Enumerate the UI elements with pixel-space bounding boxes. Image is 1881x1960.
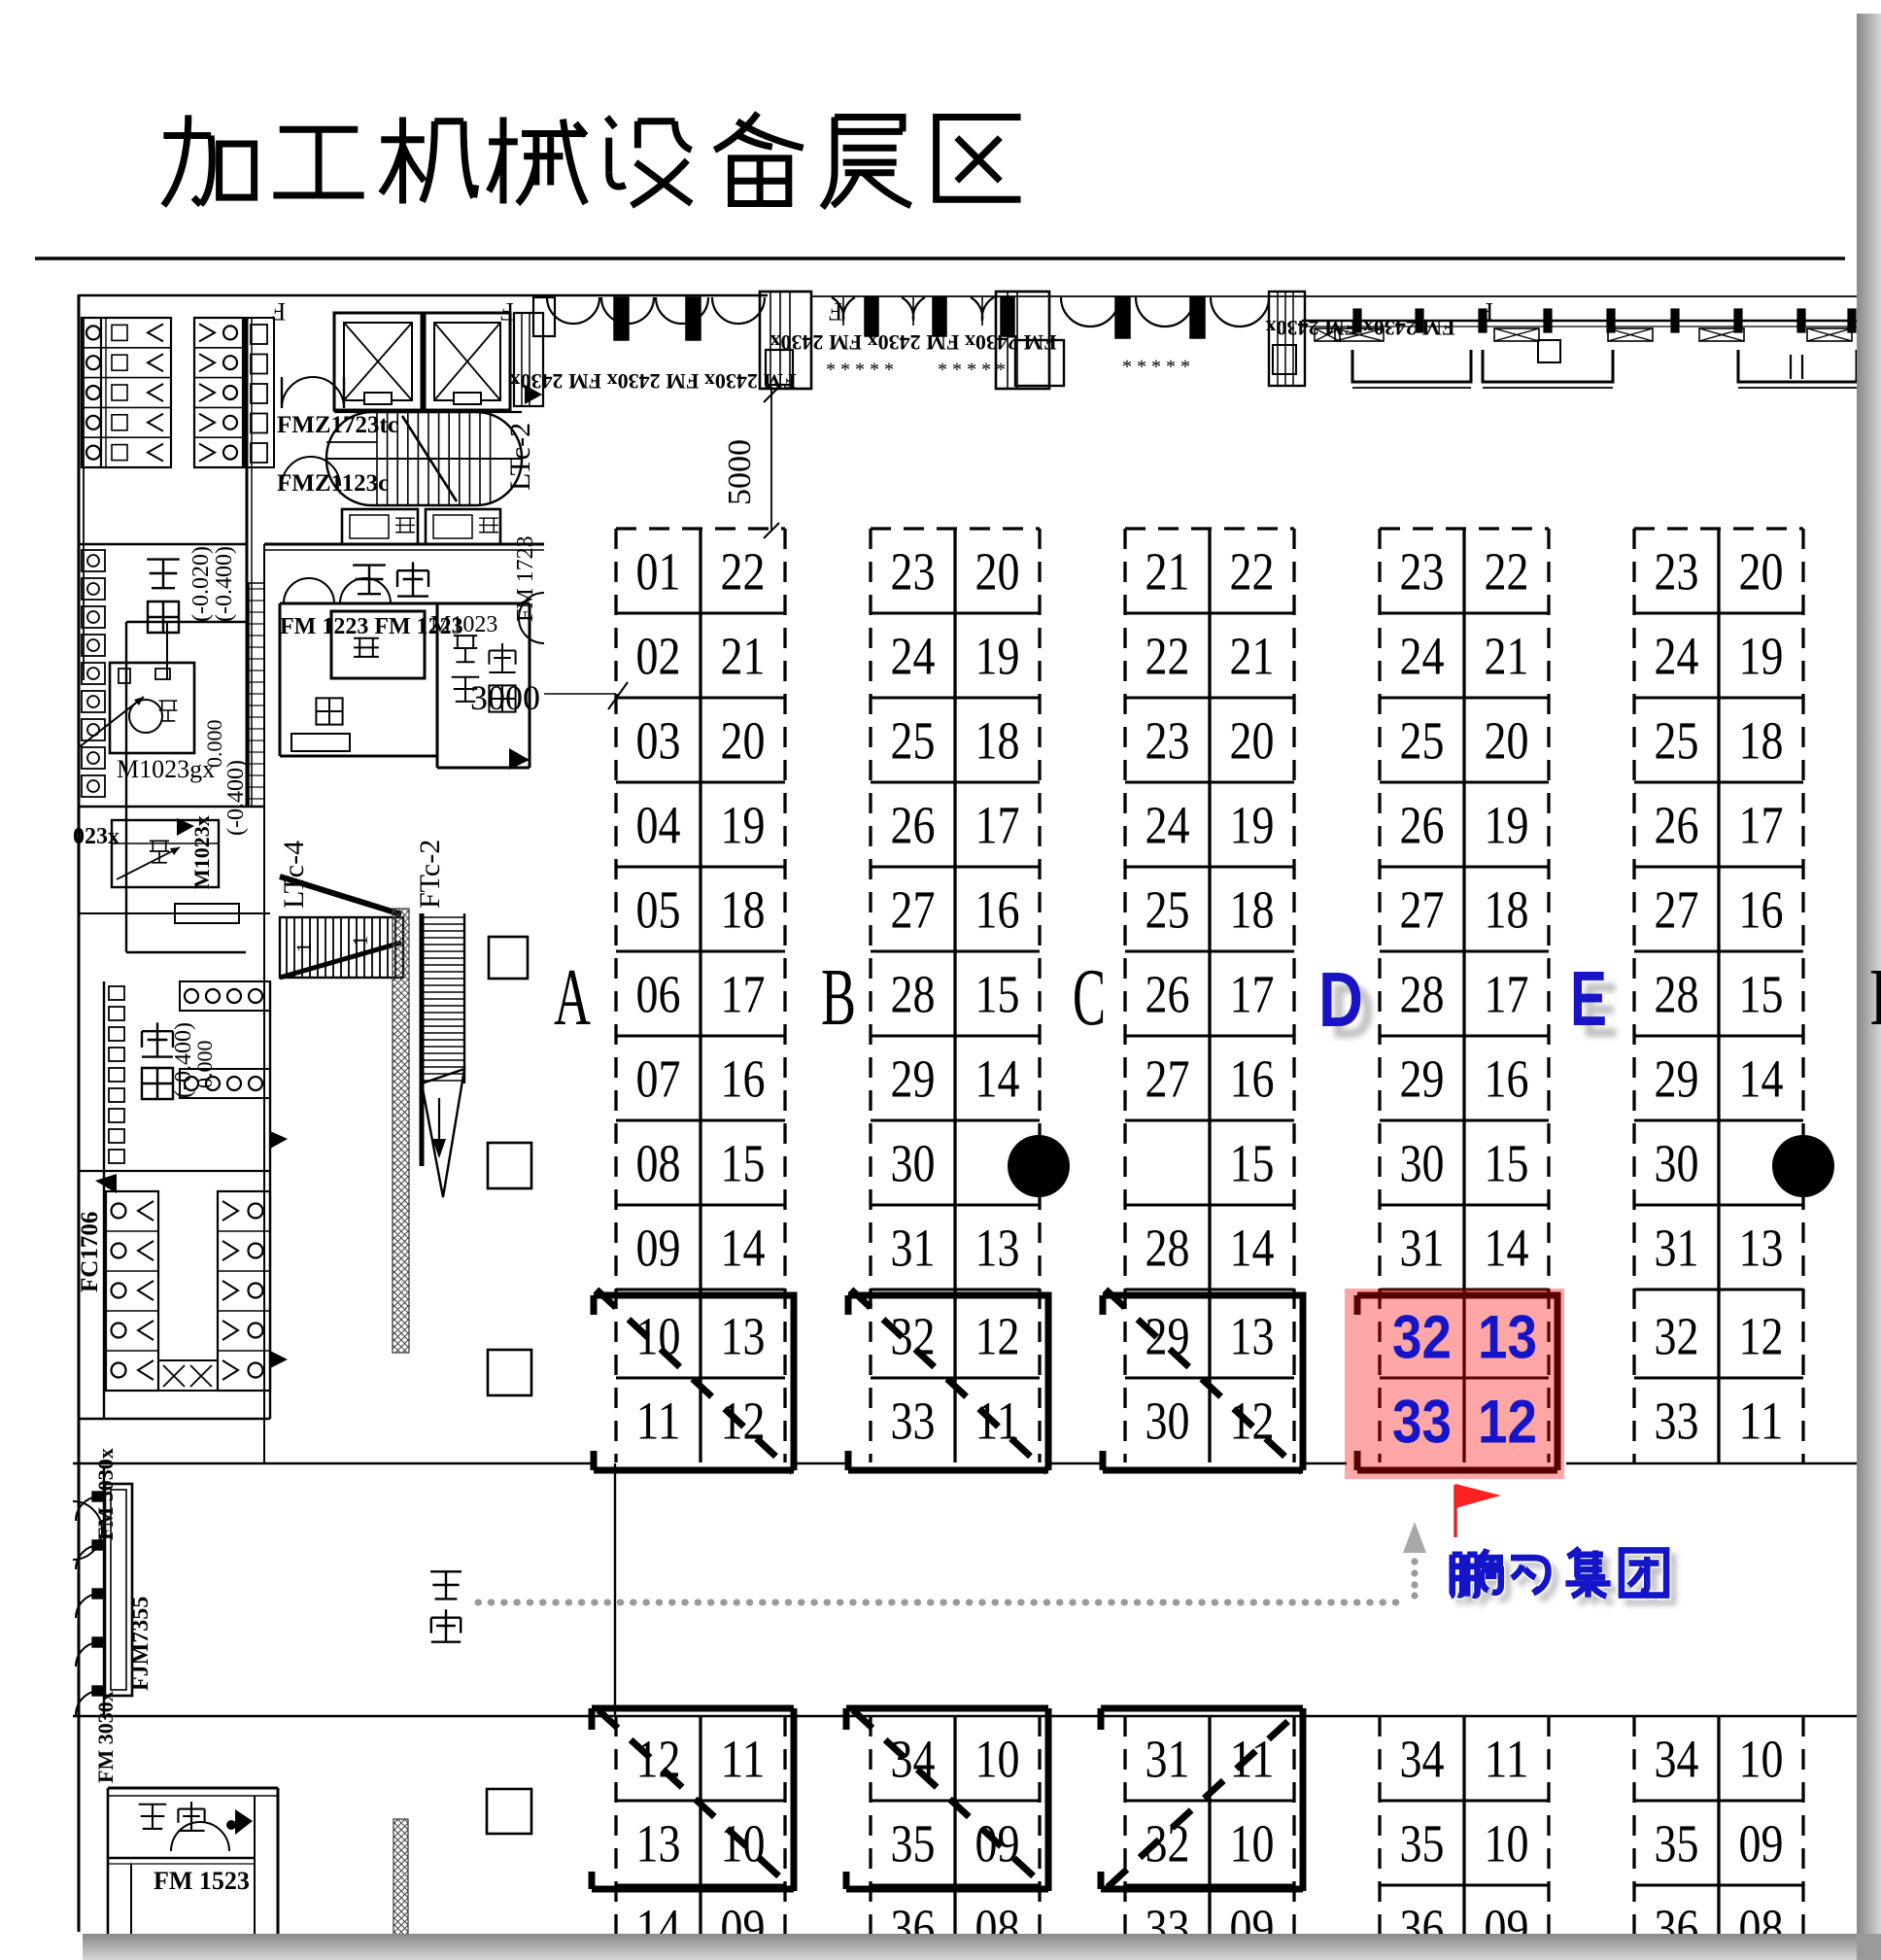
svg-text:23: 23 xyxy=(1655,542,1699,602)
svg-text:F: F xyxy=(500,297,514,326)
svg-text:B: B xyxy=(821,952,856,1043)
svg-text:17: 17 xyxy=(1230,965,1275,1024)
svg-text:27: 27 xyxy=(891,880,936,940)
svg-text:19: 19 xyxy=(721,796,766,855)
svg-text:13: 13 xyxy=(1739,1219,1784,1278)
svg-text:26: 26 xyxy=(1400,796,1445,855)
svg-text:12: 12 xyxy=(975,1307,1020,1366)
svg-text:14: 14 xyxy=(975,1049,1020,1109)
svg-text:F: F xyxy=(1869,952,1881,1043)
svg-text:30: 30 xyxy=(891,1134,936,1193)
svg-text:M1023: M1023 xyxy=(430,612,497,637)
svg-text:31: 31 xyxy=(1655,1219,1699,1278)
svg-text:16: 16 xyxy=(721,1049,766,1109)
svg-text:23: 23 xyxy=(891,542,936,602)
svg-text:1: 1 xyxy=(348,936,372,946)
svg-text:24: 24 xyxy=(1146,796,1190,855)
svg-text:33: 33 xyxy=(1655,1392,1699,1451)
svg-text:31: 31 xyxy=(891,1219,936,1278)
svg-text:11: 11 xyxy=(1485,1730,1529,1789)
svg-text:35: 35 xyxy=(891,1814,936,1874)
svg-text:* * * * *: * * * * * xyxy=(826,353,894,374)
svg-text:21: 21 xyxy=(721,627,766,686)
svg-text:20: 20 xyxy=(975,542,1020,602)
svg-text:22: 22 xyxy=(1485,542,1529,602)
svg-text:12: 12 xyxy=(1478,1389,1537,1457)
svg-text:08: 08 xyxy=(636,1134,681,1193)
svg-text:(-0.400): (-0.400) xyxy=(223,760,249,836)
svg-text:21: 21 xyxy=(1485,627,1529,686)
svg-text:FJM7355: FJM7355 xyxy=(128,1597,154,1691)
svg-text:13: 13 xyxy=(721,1307,766,1366)
svg-text:25: 25 xyxy=(1655,711,1699,771)
svg-text:19: 19 xyxy=(1485,796,1529,855)
svg-text:02: 02 xyxy=(636,627,681,686)
svg-text:22: 22 xyxy=(1146,627,1190,686)
svg-text:17: 17 xyxy=(721,965,766,1024)
svg-text:16: 16 xyxy=(1739,880,1784,940)
svg-text:11: 11 xyxy=(721,1730,766,1789)
svg-text:19: 19 xyxy=(975,627,1020,686)
svg-text:32: 32 xyxy=(1392,1304,1452,1372)
svg-text:FMZ1123c: FMZ1123c xyxy=(277,470,389,497)
svg-text:24: 24 xyxy=(891,627,936,686)
svg-text:15: 15 xyxy=(1739,965,1784,1024)
svg-text:13: 13 xyxy=(975,1219,1020,1278)
svg-text:20: 20 xyxy=(1485,711,1529,771)
svg-text:25: 25 xyxy=(1146,880,1190,940)
svg-text:19: 19 xyxy=(1739,627,1784,686)
svg-text:20: 20 xyxy=(1230,711,1275,771)
svg-text:FM 1523: FM 1523 xyxy=(154,1867,250,1895)
svg-text:23: 23 xyxy=(1400,542,1445,602)
svg-text:17: 17 xyxy=(975,796,1020,855)
svg-text:14: 14 xyxy=(721,1219,766,1278)
svg-text:24: 24 xyxy=(1400,627,1445,686)
svg-text:21: 21 xyxy=(1146,542,1190,602)
svg-text:16: 16 xyxy=(1485,1049,1529,1109)
svg-text:26: 26 xyxy=(1146,965,1190,1024)
svg-text:F: F xyxy=(272,297,286,326)
svg-text:25: 25 xyxy=(891,711,936,771)
svg-text:18: 18 xyxy=(1230,880,1275,940)
svg-text:16: 16 xyxy=(975,880,1020,940)
svg-text:13: 13 xyxy=(1478,1304,1537,1372)
svg-text:FM 2430x FM 2430x FM 2430x: FM 2430x FM 2430x FM 2430x xyxy=(509,369,796,394)
svg-text:0.000: 0.000 xyxy=(202,720,226,769)
svg-text:10: 10 xyxy=(1230,1814,1275,1874)
svg-text:29: 29 xyxy=(1400,1049,1445,1109)
svg-text:05: 05 xyxy=(636,880,681,940)
svg-text:30: 30 xyxy=(1655,1134,1699,1193)
svg-text:FC1706: FC1706 xyxy=(77,1212,103,1292)
svg-text:31: 31 xyxy=(1400,1219,1445,1278)
svg-text:10: 10 xyxy=(1739,1730,1784,1789)
svg-text:21: 21 xyxy=(1230,627,1275,686)
svg-text:27: 27 xyxy=(1146,1049,1190,1109)
svg-text:D: D xyxy=(1318,956,1363,1043)
svg-text:023x: 023x xyxy=(73,824,120,849)
svg-text:5000: 5000 xyxy=(722,439,758,505)
svg-text:3000: 3000 xyxy=(470,678,540,717)
svg-text:09: 09 xyxy=(636,1219,681,1278)
svg-text:30: 30 xyxy=(1146,1392,1190,1451)
svg-text:0.000: 0.000 xyxy=(192,1041,217,1089)
svg-text:13: 13 xyxy=(1230,1307,1275,1366)
svg-text:14: 14 xyxy=(1739,1049,1784,1109)
svg-text:11: 11 xyxy=(1739,1392,1784,1451)
svg-text:FTc-2: FTc-2 xyxy=(414,840,446,909)
svg-text:FM 1723: FM 1723 xyxy=(513,535,538,622)
svg-text:18: 18 xyxy=(975,711,1020,771)
svg-text:29: 29 xyxy=(1655,1049,1699,1109)
svg-text:31: 31 xyxy=(1146,1730,1190,1789)
svg-text:15: 15 xyxy=(975,965,1020,1024)
svg-text:12: 12 xyxy=(1739,1307,1784,1366)
svg-text:29: 29 xyxy=(891,1049,936,1109)
svg-text:25: 25 xyxy=(1400,711,1445,771)
svg-text:09: 09 xyxy=(1739,1814,1784,1874)
svg-text:26: 26 xyxy=(891,796,936,855)
svg-text:04: 04 xyxy=(636,796,681,855)
svg-text:10: 10 xyxy=(975,1730,1020,1789)
svg-text:M1023gx: M1023gx xyxy=(117,755,215,783)
svg-text:15: 15 xyxy=(1485,1134,1529,1193)
svg-text:LTc-2: LTc-2 xyxy=(504,423,536,491)
svg-text:28: 28 xyxy=(1400,965,1445,1024)
svg-text:06: 06 xyxy=(636,965,681,1024)
svg-text:03: 03 xyxy=(636,711,681,771)
svg-text:35: 35 xyxy=(1655,1814,1699,1874)
svg-text:14: 14 xyxy=(1230,1219,1275,1278)
svg-text:33: 33 xyxy=(1392,1389,1452,1457)
svg-text:11: 11 xyxy=(636,1392,681,1451)
svg-text:07: 07 xyxy=(636,1049,681,1109)
svg-text:28: 28 xyxy=(1146,1219,1190,1278)
svg-text:18: 18 xyxy=(721,880,766,940)
svg-text:28: 28 xyxy=(891,965,936,1024)
svg-text:27: 27 xyxy=(1655,880,1699,940)
svg-text:* * * * *: * * * * * xyxy=(1122,350,1190,371)
svg-text:19: 19 xyxy=(1230,796,1275,855)
svg-text:35: 35 xyxy=(1400,1814,1445,1874)
svg-text:27: 27 xyxy=(1400,880,1445,940)
svg-text:17: 17 xyxy=(1485,965,1529,1024)
svg-text:23: 23 xyxy=(1146,711,1190,771)
svg-text:01: 01 xyxy=(636,542,681,602)
svg-text:16: 16 xyxy=(1230,1049,1275,1109)
svg-text:FM 2430x FM 2430x FM 2430x: FM 2430x FM 2430x FM 2430x xyxy=(769,330,1056,355)
svg-text:13: 13 xyxy=(636,1814,681,1874)
svg-text:(-0.400): (-0.400) xyxy=(212,546,237,622)
svg-text:1: 1 xyxy=(291,943,316,953)
svg-text:34: 34 xyxy=(1655,1730,1699,1789)
svg-text:24: 24 xyxy=(1655,627,1699,686)
svg-text:22: 22 xyxy=(721,542,766,602)
svg-text:FM 2430x FM 2430x: FM 2430x FM 2430x xyxy=(1266,316,1455,340)
svg-text:10: 10 xyxy=(1485,1814,1529,1874)
svg-text:22: 22 xyxy=(1230,542,1275,602)
svg-text:F: F xyxy=(829,297,842,326)
svg-text:FMZ1723tc: FMZ1723tc xyxy=(277,412,398,438)
svg-text:E: E xyxy=(1570,955,1607,1042)
svg-text:15: 15 xyxy=(721,1134,766,1193)
svg-text:32: 32 xyxy=(1655,1307,1699,1366)
svg-text:28: 28 xyxy=(1655,965,1699,1024)
svg-text:A: A xyxy=(554,952,591,1043)
svg-text:17: 17 xyxy=(1739,796,1784,855)
svg-text:34: 34 xyxy=(1400,1730,1445,1789)
svg-text:26: 26 xyxy=(1655,796,1699,855)
svg-text:15: 15 xyxy=(1230,1134,1275,1193)
svg-text:14: 14 xyxy=(1485,1219,1529,1278)
svg-text:33: 33 xyxy=(891,1392,936,1451)
svg-text:30: 30 xyxy=(1400,1134,1445,1193)
svg-text:C: C xyxy=(1073,952,1106,1043)
svg-text:FM 3030x: FM 3030x xyxy=(93,1691,118,1783)
svg-text:18: 18 xyxy=(1485,880,1529,940)
svg-text:(-0.020): (-0.020) xyxy=(188,546,214,622)
svg-text:20: 20 xyxy=(721,711,766,771)
svg-text:18: 18 xyxy=(1739,711,1784,771)
svg-text:20: 20 xyxy=(1739,542,1784,602)
